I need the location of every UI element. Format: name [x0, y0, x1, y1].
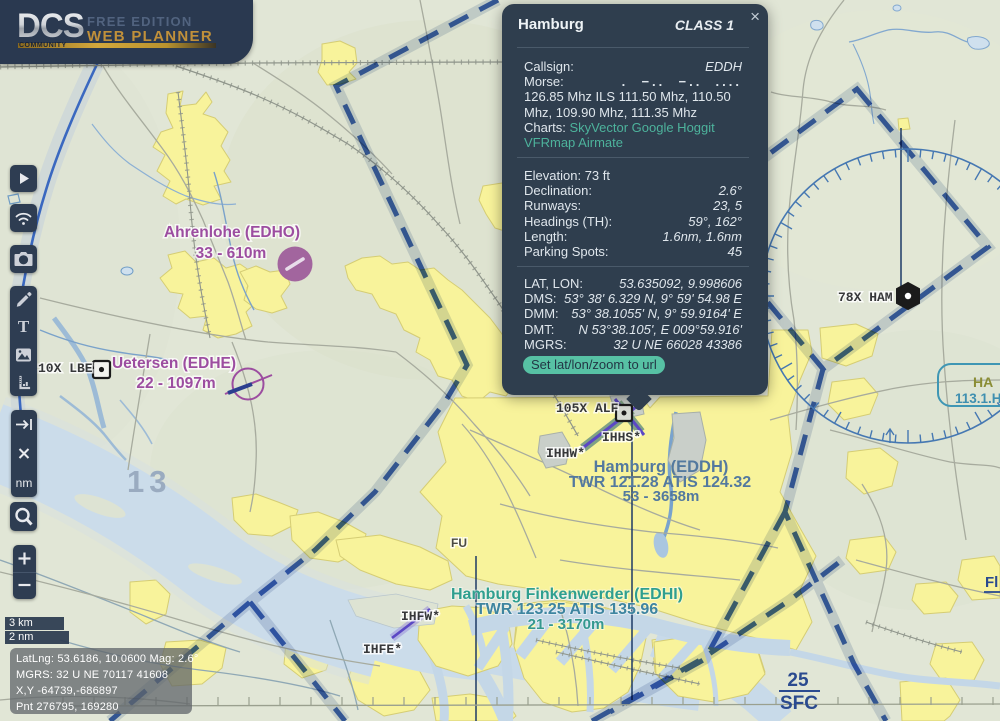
svg-text:13: 13 — [127, 464, 171, 499]
svg-text:SFC: SFC — [780, 693, 818, 714]
svg-text:FU: FU — [451, 536, 467, 550]
svg-text:78X HAM: 78X HAM — [838, 290, 893, 305]
svg-text:IHHW*: IHHW* — [546, 446, 585, 461]
svg-text:Fl: Fl — [985, 574, 998, 591]
svg-text:33 - 610m: 33 - 610m — [196, 245, 267, 262]
svg-text:22 - 1097m: 22 - 1097m — [136, 375, 215, 392]
svg-text:HA: HA — [973, 374, 993, 390]
svg-text:113.1.H: 113.1.H — [955, 391, 1000, 406]
svg-text:Ahrenlohe (EDHO): Ahrenlohe (EDHO) — [164, 224, 300, 241]
svg-text:Uetersen (EDHE): Uetersen (EDHE) — [112, 355, 236, 372]
svg-text:IHFE*: IHFE* — [363, 642, 402, 657]
svg-text:10X LBE: 10X LBE — [38, 361, 93, 376]
svg-text:IHHS*: IHHS* — [602, 430, 641, 445]
svg-text:IHFW*: IHFW* — [401, 609, 440, 624]
svg-text:53 - 3658m: 53 - 3658m — [623, 488, 700, 505]
svg-text:105X ALF: 105X ALF — [556, 401, 619, 416]
svg-text:25: 25 — [787, 670, 809, 691]
svg-text:21 - 3170m: 21 - 3170m — [528, 616, 605, 633]
